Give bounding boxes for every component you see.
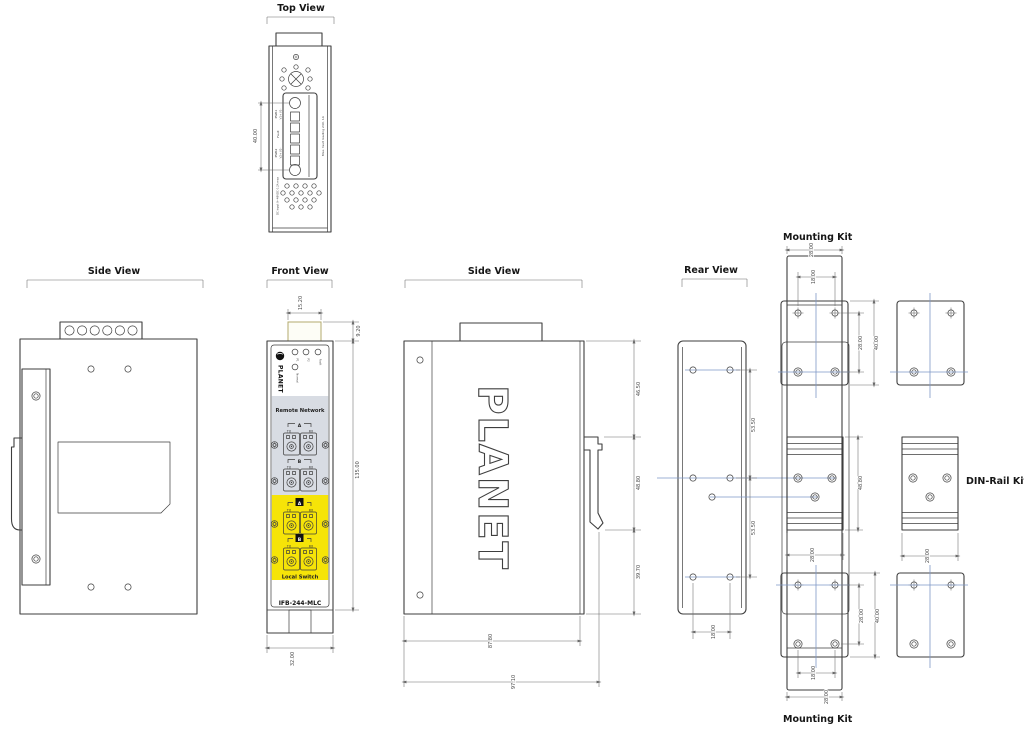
top-terminal-protrusion [288, 322, 321, 341]
svg-text:40.00: 40.00 [875, 609, 881, 623]
port-b-label: B [298, 537, 302, 543]
svg-text:15.20: 15.20 [298, 296, 304, 310]
background [0, 0, 1024, 731]
label-pwr2: PWR2 [274, 149, 278, 158]
brand-embossed: PLANET [469, 385, 515, 571]
label-dc-input: DC input 9~48VDC 0.2A max [276, 177, 280, 215]
svg-text:32.00: 32.00 [290, 652, 296, 666]
port-a-label: A [298, 423, 302, 429]
svg-text:28.00: 28.00 [810, 548, 816, 562]
brand-text: PLANET [277, 365, 284, 393]
svg-text:40.00: 40.00 [874, 336, 880, 350]
side-view-mid-title: Side View [468, 266, 521, 277]
label-pwr1: PWR1 [274, 110, 278, 119]
svg-text:28.00: 28.00 [809, 243, 815, 257]
svg-text:48.80: 48.80 [636, 476, 642, 490]
svg-text:87.80: 87.80 [488, 634, 494, 648]
mounting-kit-top-title: Mounting Kit [783, 232, 853, 243]
label-v1: V1+ V1- [279, 109, 283, 120]
port-b-label: B [298, 459, 302, 465]
remote-network-label: Remote Network [276, 408, 326, 414]
svg-text:28.00: 28.00 [858, 336, 864, 350]
front-view-title: Front View [271, 266, 329, 277]
svg-text:48.80: 48.80 [858, 476, 864, 490]
svg-text:28.00: 28.00 [925, 549, 931, 563]
svg-text:46.50: 46.50 [636, 382, 642, 396]
svg-text:97.10: 97.10 [511, 675, 517, 689]
svg-text:28.00: 28.00 [824, 690, 830, 704]
svg-text:9.20: 9.20 [356, 325, 362, 336]
din-rail-kit-label: DIN-Rail Kit [966, 476, 1024, 487]
svg-text:18.00: 18.00 [811, 270, 817, 284]
label-fault: Fault [276, 130, 280, 138]
port-a-label: A [298, 501, 302, 507]
label-v2: V2+ V2- [279, 148, 283, 159]
svg-text:40.00: 40.00 [253, 129, 259, 143]
drawing-canvas: Top View [0, 0, 1024, 731]
svg-text:18.00: 18.00 [711, 625, 717, 639]
dimension-drawing: Top View [0, 0, 1024, 731]
label-max-loading: Max. fault loading 24V, 1A [321, 115, 325, 156]
local-switch-label: Local Switch [282, 575, 319, 581]
svg-text:53.50: 53.50 [751, 521, 757, 535]
led-p2-label: P2 [307, 358, 311, 362]
rear-view-title: Rear View [684, 265, 738, 276]
led-p1-label: P1 [296, 358, 300, 362]
led-normal-label: Normal [296, 373, 300, 383]
svg-text:28.00: 28.00 [859, 609, 865, 623]
model-number: IFB-244-MLC [279, 600, 322, 607]
led-fault-label: Fault [319, 359, 323, 365]
svg-text:135.00: 135.00 [355, 461, 361, 479]
svg-text:18.00: 18.00 [811, 666, 817, 680]
mounting-kit-bottom-title: Mounting Kit [783, 714, 853, 725]
svg-text:53.50: 53.50 [751, 418, 757, 432]
svg-text:39.70: 39.70 [636, 565, 642, 579]
side-view-left-title: Side View [88, 266, 141, 277]
top-view-title: Top View [277, 3, 325, 14]
